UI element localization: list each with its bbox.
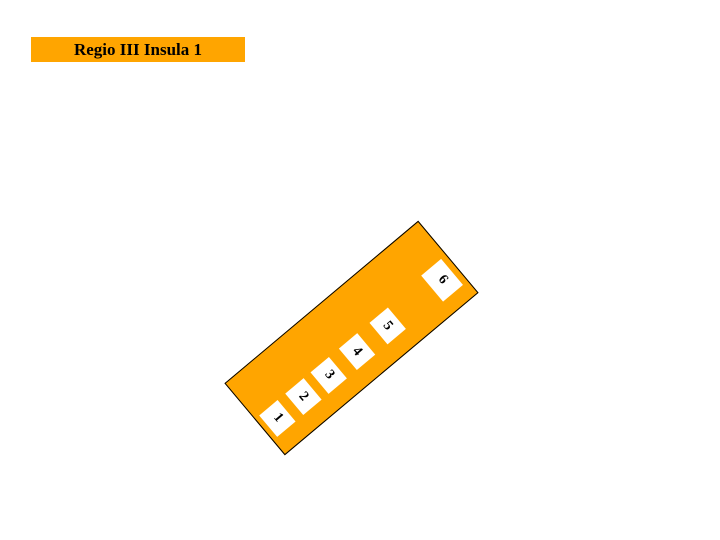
room-4[interactable]: 4 <box>338 333 374 370</box>
map-title: Regio III Insula 1 <box>74 40 202 60</box>
room-5-number: 5 <box>379 318 394 332</box>
room-1-number: 1 <box>269 411 284 425</box>
map-title-banner: Regio III Insula 1 <box>31 37 245 62</box>
room-2[interactable]: 2 <box>284 378 320 415</box>
room-5[interactable]: 5 <box>369 307 405 344</box>
insula-block: 1 2 3 4 5 6 <box>224 220 478 455</box>
page: { "title_bar": { "label": "Regio III Ins… <box>0 0 720 540</box>
room-3[interactable]: 3 <box>310 356 346 393</box>
room-1[interactable]: 1 <box>259 400 295 437</box>
room-4-number: 4 <box>349 344 364 358</box>
site-map-canvas: Regio III Insula 1 1 2 3 4 5 6 <box>0 0 720 540</box>
room-2-number: 2 <box>295 389 310 403</box>
room-3-number: 3 <box>321 368 336 382</box>
room-6[interactable]: 6 <box>421 258 463 301</box>
room-6-number: 6 <box>434 273 449 287</box>
